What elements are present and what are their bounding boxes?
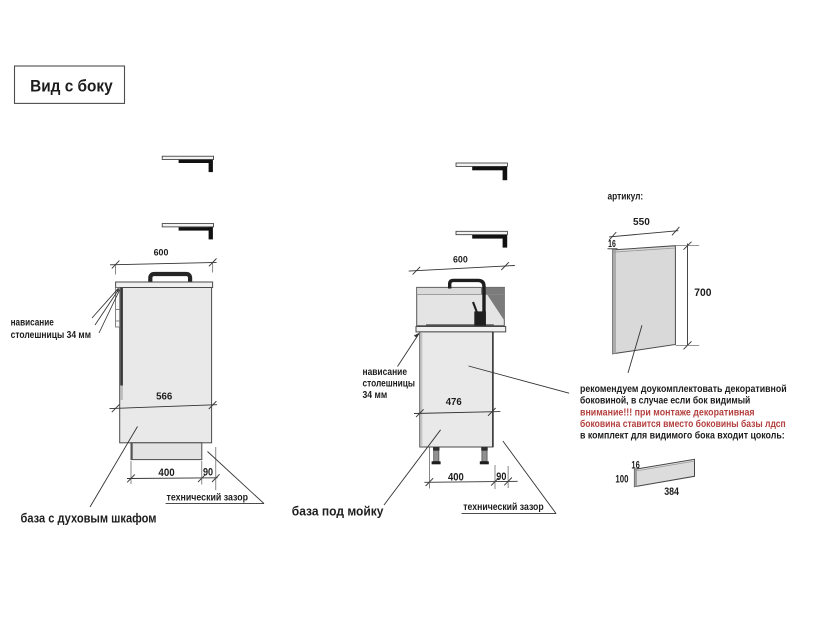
svg-text:столешницы 34 мм: столешницы 34 мм — [11, 330, 91, 341]
svg-text:боковина ставится вместо боков: боковина ставится вместо боковины базы л… — [580, 418, 786, 430]
svg-text:база с духовым шкафом: база с духовым шкафом — [21, 512, 157, 526]
svg-text:600: 600 — [453, 254, 468, 265]
svg-text:столешницы: столешницы — [363, 379, 416, 390]
svg-text:технический зазор: технический зазор — [167, 492, 249, 503]
svg-text:16: 16 — [631, 460, 639, 472]
svg-text:в комплект для видимого бока в: в комплект для видимого бока входит цоко… — [580, 430, 785, 442]
svg-text:700: 700 — [694, 287, 711, 299]
svg-text:550: 550 — [633, 216, 650, 228]
svg-text:400: 400 — [158, 467, 174, 479]
svg-text:внимание!!! при монтаже декора: внимание!!! при монтаже декоративная — [580, 406, 755, 418]
svg-text:16: 16 — [608, 238, 616, 250]
svg-text:рекомендуем доукомплектовать д: рекомендуем доукомплектовать декоративно… — [580, 383, 787, 395]
svg-text:нависание: нависание — [11, 317, 55, 328]
svg-text:Вид с боку: Вид с боку — [30, 77, 113, 96]
svg-text:476: 476 — [446, 396, 462, 408]
svg-text:34 мм: 34 мм — [363, 390, 388, 401]
svg-text:артикул:: артикул: — [608, 192, 644, 203]
svg-text:600: 600 — [154, 247, 169, 258]
svg-text:технический зазор: технический зазор — [463, 502, 543, 513]
svg-text:база под мойку: база под мойку — [292, 505, 384, 519]
svg-text:боковиной, в случае если бок в: боковиной, в случае если бок видимый — [580, 395, 750, 407]
svg-text:90: 90 — [203, 467, 213, 479]
svg-text:100: 100 — [615, 474, 628, 486]
svg-text:566: 566 — [156, 391, 172, 403]
svg-text:нависание: нависание — [363, 367, 408, 378]
svg-text:384: 384 — [664, 486, 680, 498]
